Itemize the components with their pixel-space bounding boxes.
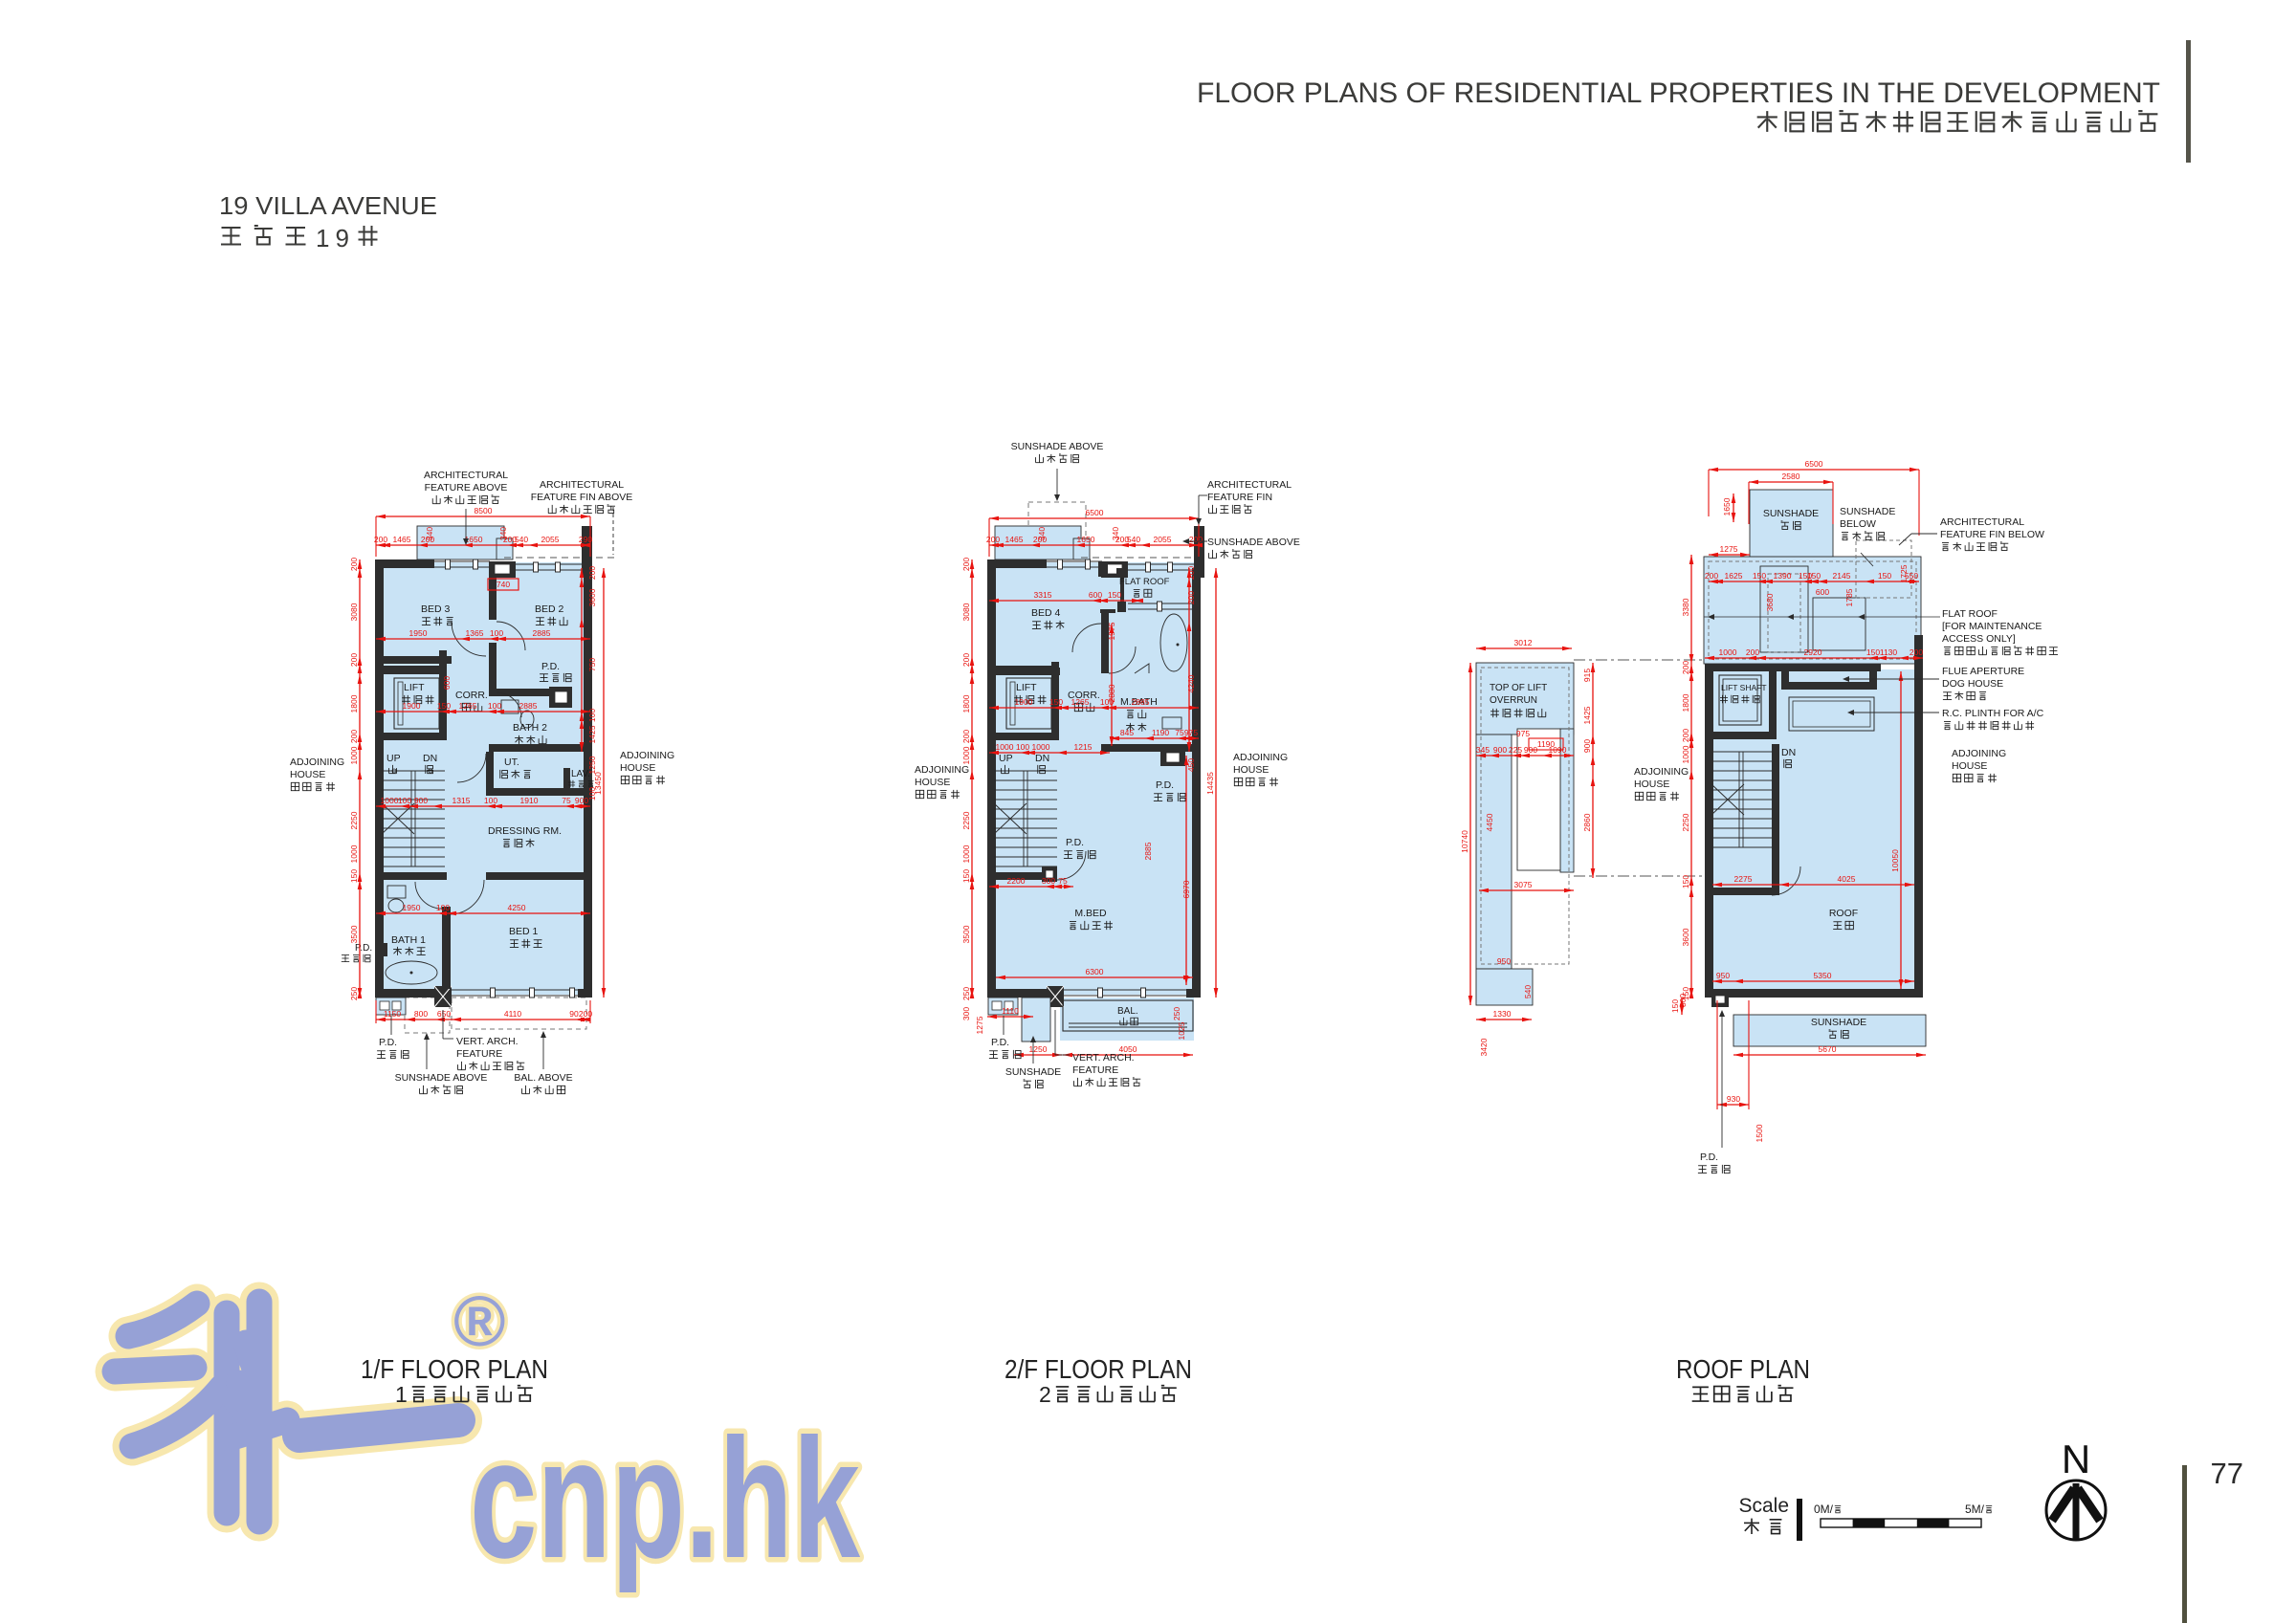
svg-text:225: 225 <box>1509 745 1522 755</box>
svg-text:3500: 3500 <box>349 925 359 943</box>
svg-text:100: 100 <box>490 628 503 638</box>
svg-text:150: 150 <box>1866 647 1880 657</box>
svg-text:SUNSHADE: SUNSHADE <box>1811 1017 1866 1028</box>
svg-text:340: 340 <box>425 527 434 540</box>
svg-text:DOG HOUSE: DOG HOUSE <box>1942 678 2003 690</box>
svg-text:100: 100 <box>436 903 450 912</box>
svg-text:DN: DN <box>423 753 437 764</box>
svg-text:1275: 1275 <box>1720 544 1738 554</box>
svg-text:ADJOINING: ADJOINING <box>290 757 344 768</box>
svg-text:1800: 1800 <box>961 694 971 713</box>
svg-text:2860: 2860 <box>1582 813 1592 831</box>
svg-text:HOUSE: HOUSE <box>1952 760 1987 772</box>
svg-text:200: 200 <box>1746 647 1759 657</box>
svg-text:P.D.: P.D. <box>1700 1151 1718 1163</box>
svg-text:1130: 1130 <box>1880 647 1898 657</box>
svg-text:Scale: Scale <box>1738 1495 1789 1517</box>
svg-text:150: 150 <box>1681 875 1690 888</box>
svg-text:ARCHITECTURAL: ARCHITECTURAL <box>540 479 624 491</box>
svg-text:BATH 1: BATH 1 <box>391 934 426 946</box>
svg-text:1465: 1465 <box>393 535 411 544</box>
svg-text:HOUSE: HOUSE <box>1233 764 1269 776</box>
svg-text:4250: 4250 <box>508 903 526 912</box>
svg-text:200: 200 <box>1186 591 1196 604</box>
svg-text:740: 740 <box>497 580 510 589</box>
svg-text:6500: 6500 <box>1805 459 1823 469</box>
svg-text:150: 150 <box>1108 590 1121 600</box>
svg-text:SUNSHADE ABOVE: SUNSHADE ABOVE <box>395 1072 488 1084</box>
svg-text:200: 200 <box>961 653 971 667</box>
svg-text:950: 950 <box>1497 956 1511 966</box>
svg-text:FLUE APERTURE: FLUE APERTURE <box>1942 666 2024 677</box>
svg-text:1: 1 <box>395 1382 408 1407</box>
svg-text:HOUSE: HOUSE <box>620 762 655 774</box>
svg-text:FEATURE FIN BELOW: FEATURE FIN BELOW <box>1940 529 2044 540</box>
svg-text:77: 77 <box>2211 1457 2243 1490</box>
svg-text:2885: 2885 <box>1143 842 1153 860</box>
svg-text:290: 290 <box>579 535 592 544</box>
svg-text:1425: 1425 <box>1582 706 1592 724</box>
svg-text:3600: 3600 <box>1681 928 1690 946</box>
svg-text:SUNSHADE ABOVE: SUNSHADE ABOVE <box>1207 537 1300 548</box>
svg-text:1950: 1950 <box>403 903 421 912</box>
svg-text:8500: 8500 <box>475 506 493 515</box>
svg-text:1000: 1000 <box>381 796 399 805</box>
svg-text:200: 200 <box>1910 647 1923 657</box>
svg-text:200: 200 <box>1681 729 1690 742</box>
svg-text:250: 250 <box>1172 1007 1181 1020</box>
svg-text:3080: 3080 <box>349 603 359 621</box>
svg-text:1315: 1315 <box>453 796 471 805</box>
svg-text:VERT. ARCH.: VERT. ARCH. <box>456 1036 519 1047</box>
svg-text:1910: 1910 <box>520 796 539 805</box>
svg-text:OVERRUN: OVERRUN <box>1490 695 1537 706</box>
svg-text:LIFT: LIFT <box>404 682 425 693</box>
svg-text:100: 100 <box>587 787 597 801</box>
svg-text:75: 75 <box>1175 728 1184 737</box>
svg-text:BAL. ABOVE: BAL. ABOVE <box>514 1072 572 1084</box>
svg-text:340: 340 <box>1037 527 1047 540</box>
svg-text:VERT. ARCH.: VERT. ARCH. <box>1072 1052 1135 1064</box>
svg-text:100: 100 <box>1016 742 1029 752</box>
svg-text:ROOF PLAN: ROOF PLAN <box>1676 1354 1810 1384</box>
svg-text:1650: 1650 <box>1722 497 1732 515</box>
svg-text:10740: 10740 <box>1460 830 1469 853</box>
svg-text:3680: 3680 <box>1765 593 1775 611</box>
svg-text:75: 75 <box>562 796 571 805</box>
svg-text:4240: 4240 <box>1186 674 1196 692</box>
svg-text:1150: 1150 <box>384 1009 402 1019</box>
svg-text:5350: 5350 <box>1814 971 1832 980</box>
svg-text:1975: 1975 <box>1107 622 1116 640</box>
svg-text:250: 250 <box>961 987 971 1000</box>
svg-text:200: 200 <box>961 558 971 571</box>
svg-text:2/F FLOOR PLAN: 2/F FLOOR PLAN <box>1004 1354 1192 1384</box>
svg-text:150: 150 <box>1670 999 1680 1013</box>
svg-text:650: 650 <box>437 1009 451 1019</box>
svg-text:1025: 1025 <box>1177 1021 1186 1040</box>
svg-text:ADJOINING: ADJOINING <box>620 750 674 761</box>
svg-text:FEATURE: FEATURE <box>1072 1064 1118 1076</box>
svg-text:1000: 1000 <box>349 746 359 764</box>
svg-text:DN: DN <box>1781 747 1796 758</box>
svg-text:1215: 1215 <box>1074 742 1093 752</box>
svg-text:340: 340 <box>1111 527 1120 540</box>
svg-text:845: 845 <box>1120 728 1134 737</box>
svg-text:HOUSE: HOUSE <box>290 769 325 780</box>
svg-text:540: 540 <box>1127 535 1140 544</box>
svg-text:3500: 3500 <box>961 925 971 943</box>
svg-text:FEATURE FIN ABOVE: FEATURE FIN ABOVE <box>531 492 633 503</box>
svg-text:ADJOINING: ADJOINING <box>1233 752 1288 763</box>
svg-text:1275: 1275 <box>975 1016 984 1034</box>
svg-text:975: 975 <box>1184 728 1198 737</box>
svg-text:5670: 5670 <box>1819 1044 1837 1054</box>
svg-text:2250: 2250 <box>349 811 359 829</box>
svg-text:1000: 1000 <box>349 844 359 863</box>
svg-text:1265: 1265 <box>459 701 477 711</box>
svg-text:SUNSHADE: SUNSHADE <box>1763 508 1819 519</box>
svg-text:P.D.: P.D. <box>379 1037 397 1048</box>
svg-text:345: 345 <box>1476 745 1490 755</box>
svg-text:1800: 1800 <box>349 694 359 713</box>
svg-text:2145: 2145 <box>1833 571 1851 581</box>
svg-text:1265: 1265 <box>1071 697 1090 707</box>
svg-text:FEATURE FIN: FEATURE FIN <box>1207 492 1272 503</box>
svg-text:HOUSE: HOUSE <box>915 777 950 788</box>
svg-text:2250: 2250 <box>961 811 971 829</box>
svg-text:150: 150 <box>961 869 971 883</box>
svg-text:6970: 6970 <box>1181 880 1191 898</box>
svg-text:200: 200 <box>986 535 1000 544</box>
svg-text:ARCHITECTURAL: ARCHITECTURAL <box>424 470 508 481</box>
svg-text:3080: 3080 <box>961 603 971 621</box>
svg-text:200: 200 <box>1189 535 1203 544</box>
svg-text:UP: UP <box>386 753 401 764</box>
svg-text:ADJOINING: ADJOINING <box>915 764 969 776</box>
svg-text:®: ® <box>453 1282 506 1361</box>
svg-text:FLAT ROOF: FLAT ROOF <box>1119 577 1170 587</box>
svg-text:4110: 4110 <box>504 1009 522 1019</box>
svg-text:BAL.: BAL. <box>1117 1006 1138 1017</box>
svg-text:540: 540 <box>515 535 528 544</box>
svg-text:1390: 1390 <box>1774 571 1792 581</box>
svg-text:600: 600 <box>1089 590 1102 600</box>
svg-text:900: 900 <box>1582 739 1592 753</box>
svg-text:100: 100 <box>484 796 497 805</box>
svg-text:2580: 2580 <box>1782 472 1800 481</box>
svg-text:300: 300 <box>1042 876 1055 886</box>
svg-text:800: 800 <box>414 1009 428 1019</box>
svg-text:3600: 3600 <box>587 588 597 606</box>
svg-text:1500: 1500 <box>1755 1124 1764 1142</box>
svg-text:200: 200 <box>374 535 387 544</box>
svg-text:FEATURE: FEATURE <box>456 1048 502 1060</box>
svg-text:600: 600 <box>1816 587 1829 597</box>
svg-text:1365: 1365 <box>466 628 484 638</box>
svg-text:FLOOR PLANS OF RESIDENTIAL PRO: FLOOR PLANS OF RESIDENTIAL PROPERTIES IN… <box>1197 77 2160 109</box>
svg-text:R.C. PLINTH FOR A/C: R.C. PLINTH FOR A/C <box>1942 708 2044 719</box>
svg-text:1000: 1000 <box>1681 745 1690 763</box>
svg-text:975: 975 <box>1516 729 1530 738</box>
svg-text:200: 200 <box>349 730 359 743</box>
svg-text:900: 900 <box>414 796 428 805</box>
svg-text:1000: 1000 <box>961 844 971 863</box>
svg-text:ADJOINING: ADJOINING <box>1634 766 1689 778</box>
svg-text:930: 930 <box>1727 1094 1740 1104</box>
svg-text:1110: 1110 <box>1002 1006 1019 1016</box>
svg-text:14435: 14435 <box>1205 772 1215 795</box>
svg-text:2200: 2200 <box>1007 876 1026 886</box>
svg-text:1000: 1000 <box>1032 742 1050 752</box>
svg-text:200: 200 <box>961 730 971 743</box>
svg-text:[FOR MAINTENANCE: [FOR MAINTENANCE <box>1942 621 2042 632</box>
svg-text:BED 1: BED 1 <box>509 926 539 937</box>
svg-text:CORR.: CORR. <box>455 690 488 701</box>
svg-text:10050: 10050 <box>1890 849 1900 872</box>
svg-text:100: 100 <box>398 796 411 805</box>
svg-text:19: 19 <box>316 224 355 252</box>
svg-text:200: 200 <box>349 653 359 667</box>
svg-text:950: 950 <box>1716 971 1730 980</box>
svg-text:1/F FLOOR PLAN: 1/F FLOOR PLAN <box>361 1354 548 1384</box>
svg-text:915: 915 <box>1582 669 1592 682</box>
svg-text:2880: 2880 <box>1107 684 1116 702</box>
svg-text:2250: 2250 <box>1681 813 1690 831</box>
svg-text:SUNSHADE: SUNSHADE <box>1005 1066 1061 1078</box>
svg-text:2885: 2885 <box>533 628 551 638</box>
svg-text:340: 340 <box>498 527 508 540</box>
svg-text:P.D.: P.D. <box>541 661 560 672</box>
svg-text:1250: 1250 <box>1029 1044 1048 1054</box>
svg-text:SUNSHADE ABOVE: SUNSHADE ABOVE <box>1011 441 1104 452</box>
svg-text:1900: 1900 <box>403 701 421 711</box>
svg-text:LIFT SHAFT: LIFT SHAFT <box>1721 683 1767 692</box>
svg-text:1330: 1330 <box>1493 1009 1512 1019</box>
svg-text:1650: 1650 <box>1077 535 1095 544</box>
svg-text:1625: 1625 <box>1725 571 1743 581</box>
svg-text:150: 150 <box>1807 571 1821 581</box>
svg-text:100: 100 <box>587 709 597 722</box>
svg-text:1800: 1800 <box>1681 693 1690 712</box>
svg-text:2: 2 <box>1039 1382 1051 1407</box>
svg-text:1785: 1785 <box>1844 588 1854 606</box>
svg-text:2920: 2920 <box>1804 647 1822 657</box>
svg-text:300: 300 <box>961 1007 971 1020</box>
svg-text:DRESSING RM.: DRESSING RM. <box>488 825 562 837</box>
svg-text:1000: 1000 <box>996 742 1014 752</box>
svg-text:200: 200 <box>1186 566 1196 580</box>
svg-text:P.D.: P.D. <box>355 943 372 954</box>
svg-text:UP: UP <box>999 753 1013 764</box>
svg-text:BELOW: BELOW <box>1840 518 1876 530</box>
svg-text:1900: 1900 <box>1015 697 1033 707</box>
svg-text:100: 100 <box>488 701 501 711</box>
svg-text:1725: 1725 <box>1899 564 1909 582</box>
svg-text:6500: 6500 <box>1086 508 1104 517</box>
svg-text:1190: 1190 <box>1537 739 1556 749</box>
svg-text:UT.: UT. <box>504 757 519 768</box>
svg-text:150: 150 <box>1878 571 1891 581</box>
svg-text:HOUSE: HOUSE <box>1634 779 1669 790</box>
svg-text:150: 150 <box>1049 697 1063 707</box>
svg-text:BED 4: BED 4 <box>1031 607 1061 619</box>
svg-text:250: 250 <box>349 987 359 1000</box>
svg-text:200: 200 <box>349 558 359 571</box>
svg-text:M.BED: M.BED <box>1074 908 1107 919</box>
svg-text:2055: 2055 <box>1154 535 1172 544</box>
svg-text:cnp.hk: cnp.hk <box>470 1403 861 1593</box>
svg-text:450: 450 <box>1186 758 1196 772</box>
svg-text:1000: 1000 <box>1719 647 1737 657</box>
svg-text:N: N <box>2062 1437 2090 1481</box>
svg-text:19 VILLA AVENUE: 19 VILLA AVENUE <box>219 191 437 220</box>
svg-text:2885: 2885 <box>1132 697 1150 707</box>
svg-text:200: 200 <box>1705 571 1718 581</box>
svg-text:150: 150 <box>349 869 359 883</box>
svg-text:1190: 1190 <box>1152 728 1170 737</box>
svg-text:BED 3: BED 3 <box>421 603 451 615</box>
svg-text:75: 75 <box>1058 876 1068 886</box>
svg-text:3075: 3075 <box>1514 880 1533 889</box>
svg-text:P.D.: P.D. <box>1066 837 1084 848</box>
svg-text:150: 150 <box>1753 571 1766 581</box>
svg-text:3420: 3420 <box>1479 1038 1489 1056</box>
svg-text:P.D.: P.D. <box>1156 779 1174 791</box>
svg-text:4450: 4450 <box>1485 813 1494 831</box>
svg-text:ARCHITECTURAL: ARCHITECTURAL <box>1940 516 2024 528</box>
svg-text:2275: 2275 <box>1734 874 1753 884</box>
svg-text:5M/: 5M/ <box>1965 1502 1985 1516</box>
svg-text:LIFT: LIFT <box>1016 682 1037 693</box>
svg-text:3315: 3315 <box>1034 590 1052 600</box>
svg-text:0M/: 0M/ <box>1814 1502 1834 1516</box>
svg-text:ARCHITECTURAL: ARCHITECTURAL <box>1207 479 1291 491</box>
svg-text:2055: 2055 <box>541 535 560 544</box>
svg-text:BATH 2: BATH 2 <box>513 722 547 734</box>
svg-text:BED 2: BED 2 <box>535 603 564 615</box>
svg-text:ADJOINING: ADJOINING <box>1952 748 2006 759</box>
svg-text:3380: 3380 <box>1681 598 1690 616</box>
svg-text:1000: 1000 <box>961 746 971 764</box>
svg-text:4025: 4025 <box>1838 874 1856 884</box>
svg-text:540: 540 <box>1523 985 1533 998</box>
svg-text:2885: 2885 <box>519 701 538 711</box>
svg-text:ROOF: ROOF <box>1829 908 1858 919</box>
svg-text:FEATURE ABOVE: FEATURE ABOVE <box>425 482 508 493</box>
svg-text:900: 900 <box>1493 745 1507 755</box>
svg-text:1425: 1425 <box>587 725 597 743</box>
svg-text:1950: 1950 <box>409 628 428 638</box>
svg-text:TOP OF LIFT: TOP OF LIFT <box>1490 683 1547 693</box>
svg-text:200: 200 <box>1681 661 1690 674</box>
svg-text:SUNSHADE: SUNSHADE <box>1840 506 1895 517</box>
svg-text:DN: DN <box>1035 753 1049 764</box>
svg-text:90: 90 <box>569 1009 579 1019</box>
svg-text:FLAT ROOF: FLAT ROOF <box>1942 608 1998 620</box>
svg-text:3012: 3012 <box>1514 638 1533 647</box>
svg-text:150: 150 <box>437 701 451 711</box>
svg-text:600: 600 <box>442 676 452 690</box>
svg-text:1250: 1250 <box>587 756 597 774</box>
svg-text:200: 200 <box>587 566 597 580</box>
svg-text:6300: 6300 <box>1086 967 1104 976</box>
svg-text:750: 750 <box>587 658 597 671</box>
svg-text:ACCESS ONLY]: ACCESS ONLY] <box>1942 633 2016 645</box>
svg-text:1465: 1465 <box>1005 535 1024 544</box>
svg-text:P.D.: P.D. <box>991 1037 1009 1048</box>
